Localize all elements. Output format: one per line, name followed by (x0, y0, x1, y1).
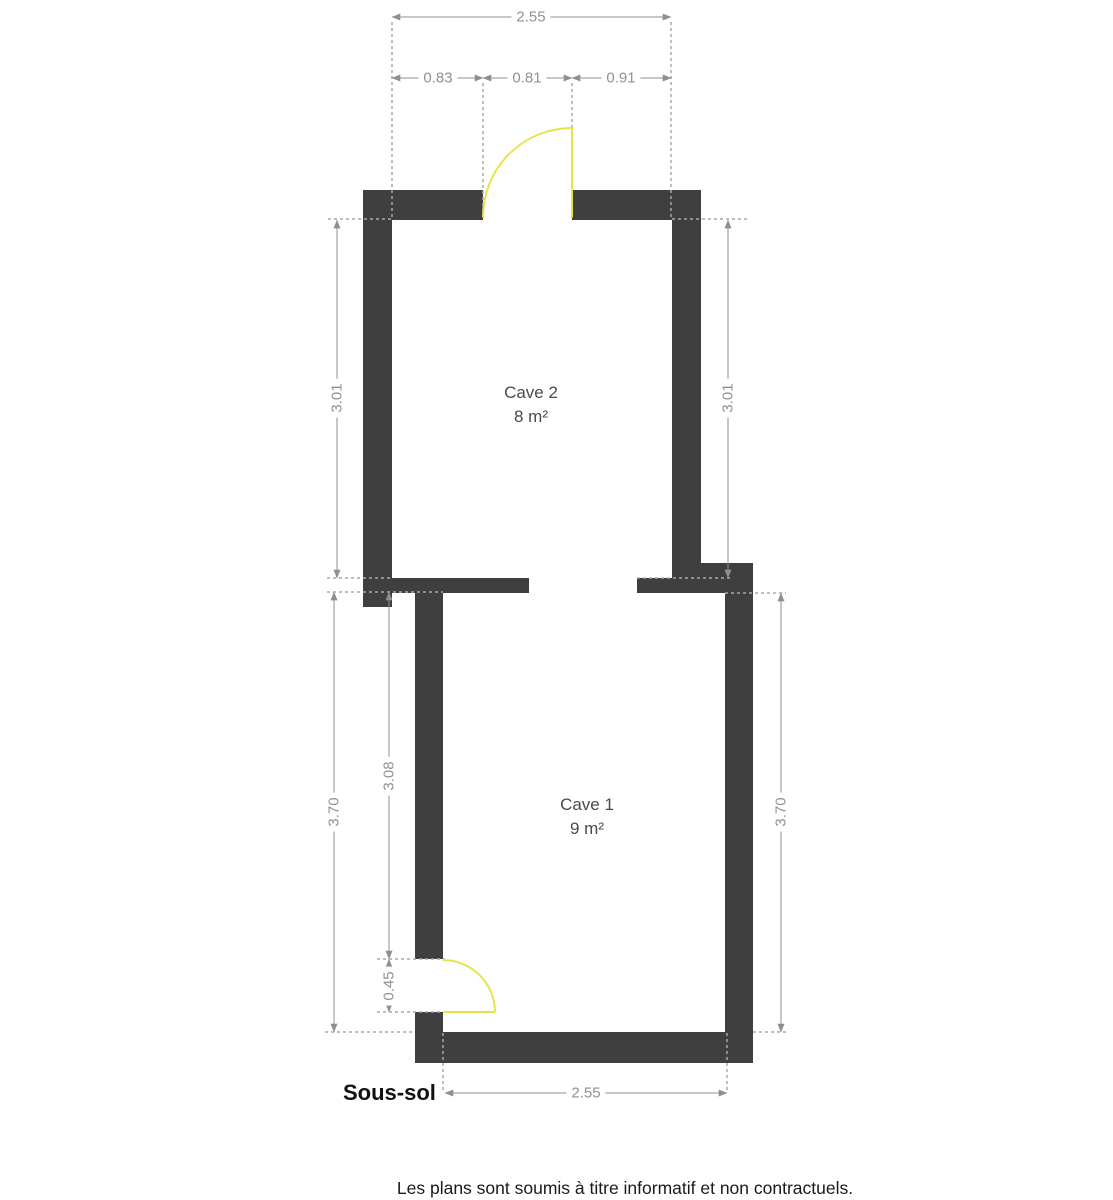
extension-lines (325, 22, 787, 1091)
wall-cave2-right (672, 190, 701, 593)
wall-middle-left (392, 578, 529, 593)
door-swing-top (483, 128, 572, 217)
dimension-label-cave1-door-height: 0.45 (381, 966, 398, 1005)
wall-bottom (415, 1032, 753, 1063)
dimension-label-top-right-segment: 0.91 (601, 70, 640, 87)
dimension-label-top-left-segment: 0.83 (418, 70, 457, 87)
dimension-label-bottom-total: 2.55 (566, 1085, 605, 1102)
dimension-label-top-total: 2.55 (511, 9, 550, 26)
room-name-cave1: Cave 1 (560, 793, 614, 817)
room-area-cave2: 8 m² (504, 405, 558, 429)
dimension-label-cave2-height-right: 3.01 (720, 378, 737, 417)
dimension-lines (334, 17, 781, 1093)
wall-cave2-left (363, 190, 392, 607)
plan-graphics (0, 0, 1113, 1200)
dimension-label-cave1-inner-height: 3.08 (381, 756, 398, 795)
dimension-label-top-door-width: 0.81 (507, 70, 546, 87)
room-area-cave1: 9 m² (560, 817, 614, 841)
dimension-label-cave2-height-left: 3.01 (329, 378, 346, 417)
wall-middle-right (637, 578, 753, 593)
dimension-label-cave1-height-left: 3.70 (326, 792, 343, 831)
footer-note: Les plans sont soumis à titre informatif… (397, 1178, 853, 1199)
room-label-cave1: Cave 1 9 m² (560, 793, 614, 841)
floor-title: Sous-sol (343, 1080, 436, 1106)
room-name-cave2: Cave 2 (504, 381, 558, 405)
room-label-cave2: Cave 2 8 m² (504, 381, 558, 429)
dimension-label-cave1-height-right: 3.70 (773, 792, 790, 831)
floor-plan-page: 2.55 0.83 0.81 0.91 3.01 3.01 3.70 3.08 … (0, 0, 1113, 1200)
wall-cave1-left-upper (415, 593, 443, 959)
wall-cave1-right (725, 593, 753, 1063)
door-swing-bottom (443, 960, 495, 1012)
